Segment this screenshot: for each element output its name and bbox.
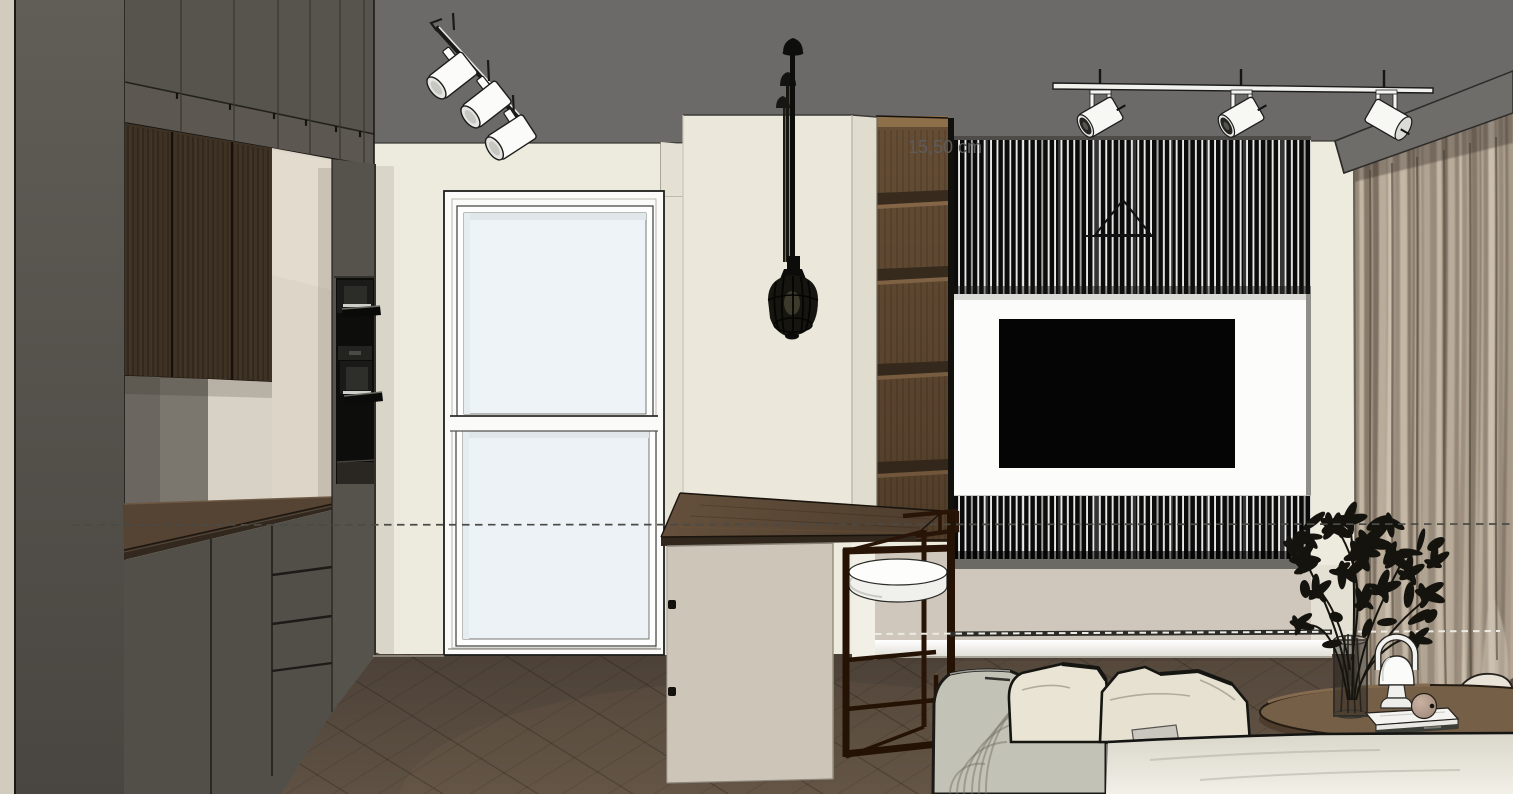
svg-text:15,50 cm: 15,50 cm [908,137,982,157]
